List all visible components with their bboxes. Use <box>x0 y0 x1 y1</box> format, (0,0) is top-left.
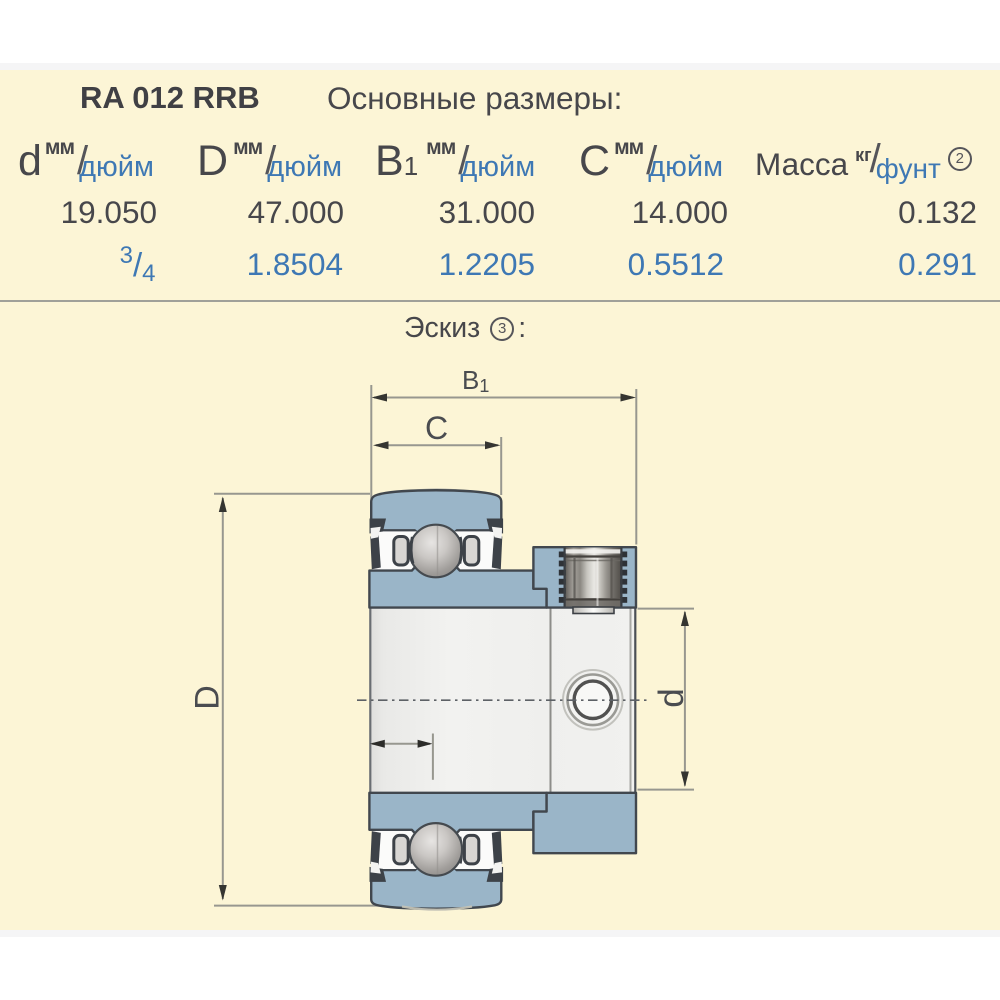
svg-text:C: C <box>425 410 448 446</box>
svg-text:B1: B1 <box>462 365 489 396</box>
svg-text:d: d <box>652 688 691 707</box>
svg-text:D: D <box>189 685 227 710</box>
